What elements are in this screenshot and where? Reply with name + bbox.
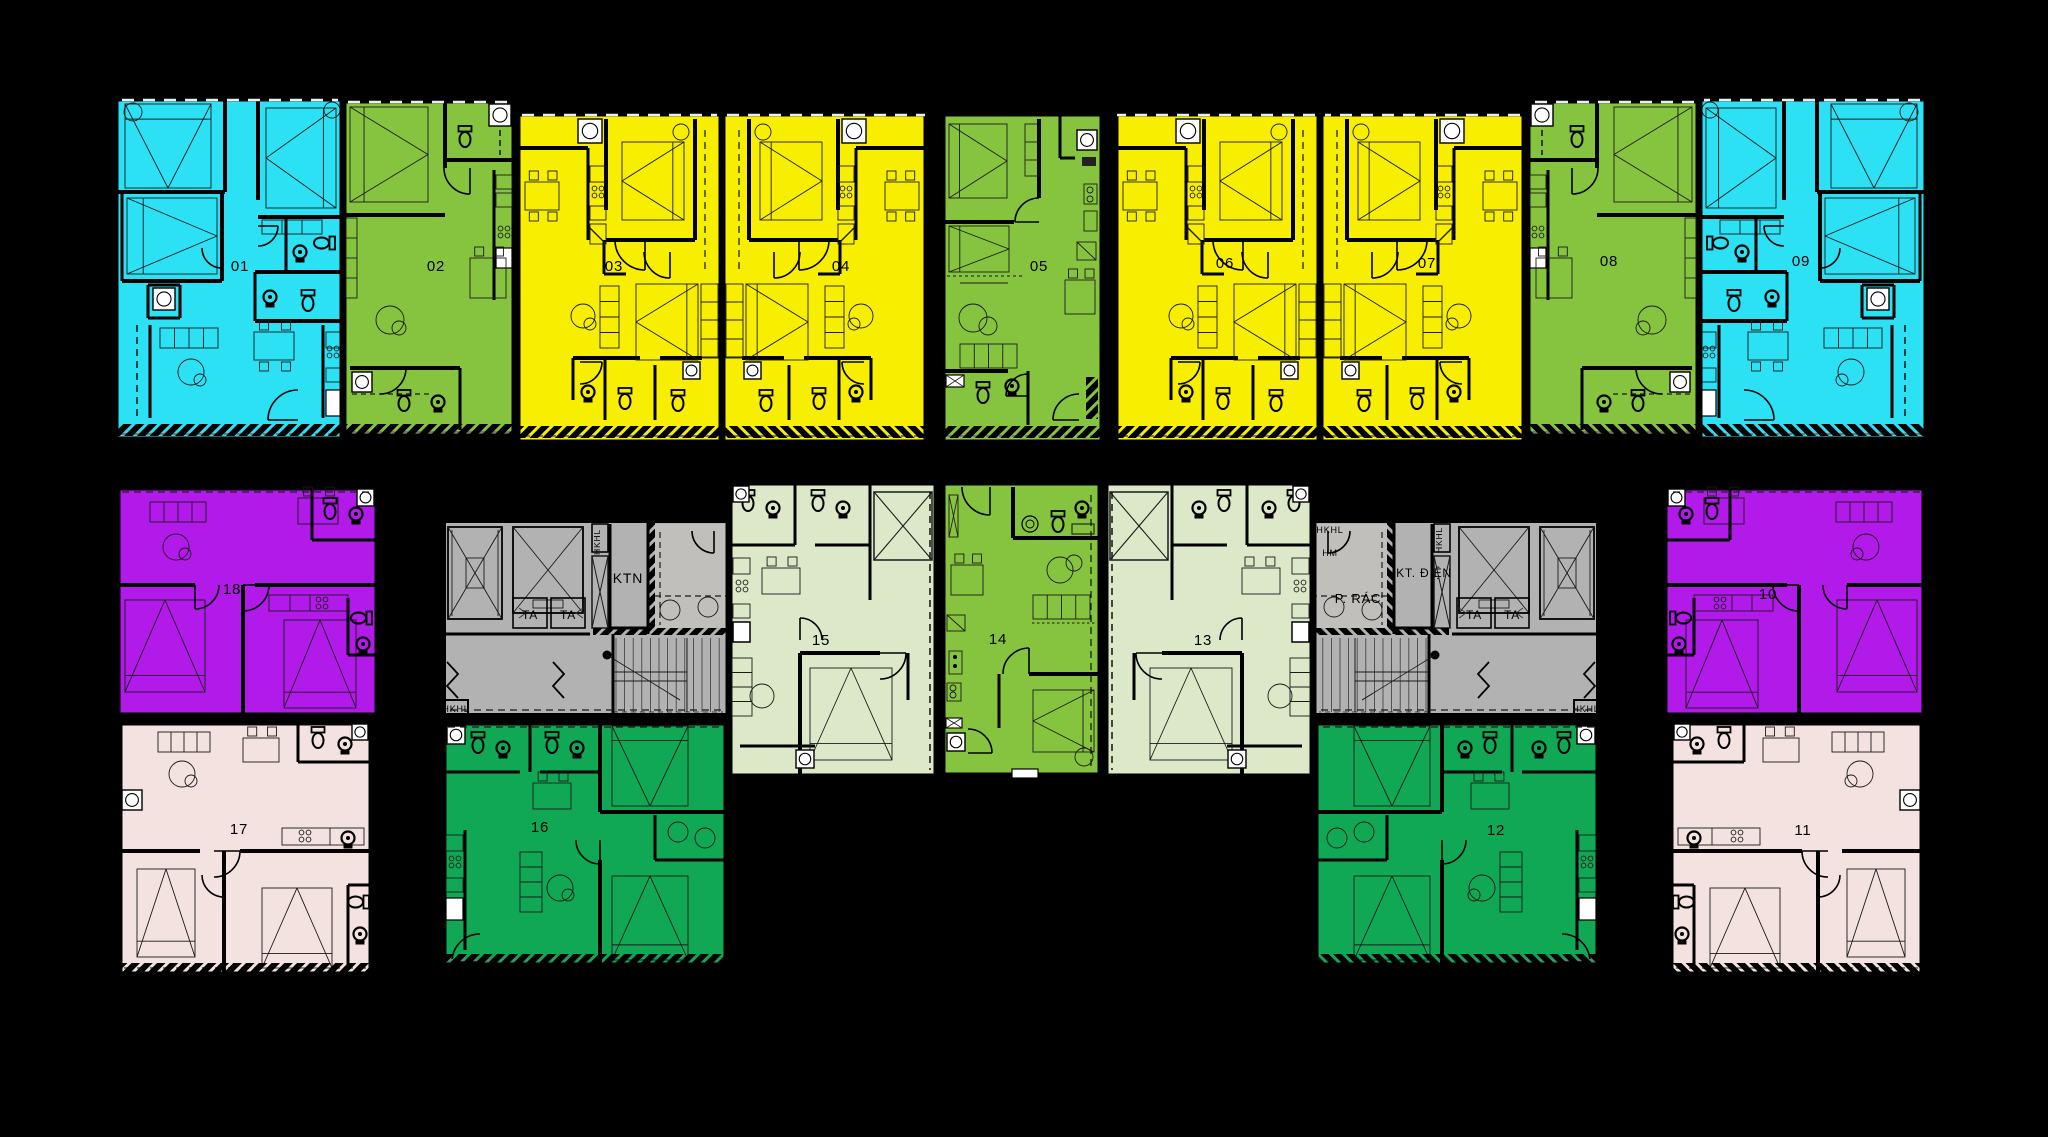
svg-text:18: 18 — [223, 581, 241, 598]
svg-text:02: 02 — [427, 258, 445, 275]
svg-text:HM: HM — [1322, 548, 1338, 558]
svg-text:03: 03 — [605, 258, 623, 275]
svg-text:06: 06 — [1216, 255, 1234, 272]
svg-text:TA: TA — [522, 608, 538, 622]
svg-text:HKHL: HKHL — [442, 704, 469, 714]
svg-text:10: 10 — [1759, 586, 1777, 603]
svg-text:01: 01 — [231, 258, 249, 275]
svg-text:12: 12 — [1487, 822, 1505, 839]
svg-text:KT. ĐIỆN: KT. ĐIỆN — [1396, 565, 1452, 580]
svg-text:14: 14 — [989, 631, 1007, 648]
svg-text:13: 13 — [1194, 632, 1212, 649]
svg-text:05: 05 — [1030, 258, 1048, 275]
svg-text:11: 11 — [1794, 822, 1811, 839]
svg-text:P. RÁC: P. RÁC — [1335, 591, 1381, 606]
svg-text:TA: TA — [1466, 608, 1482, 622]
svg-text:15: 15 — [812, 632, 830, 649]
svg-text:HKHL: HKHL — [1316, 525, 1343, 535]
svg-text:HKHL: HKHL — [1572, 704, 1599, 714]
svg-text:KTN: KTN — [613, 570, 643, 586]
svg-text:HKHL: HKHL — [592, 529, 602, 555]
svg-text:TA: TA — [1504, 608, 1520, 622]
svg-text:17: 17 — [230, 821, 248, 838]
svg-text:TA: TA — [560, 608, 576, 622]
svg-text:HKHL: HKHL — [1434, 527, 1444, 553]
svg-text:04: 04 — [832, 258, 850, 275]
svg-text:07: 07 — [1418, 255, 1436, 272]
svg-text:09: 09 — [1792, 253, 1810, 270]
svg-text:08: 08 — [1600, 253, 1618, 270]
svg-text:16: 16 — [531, 819, 549, 836]
